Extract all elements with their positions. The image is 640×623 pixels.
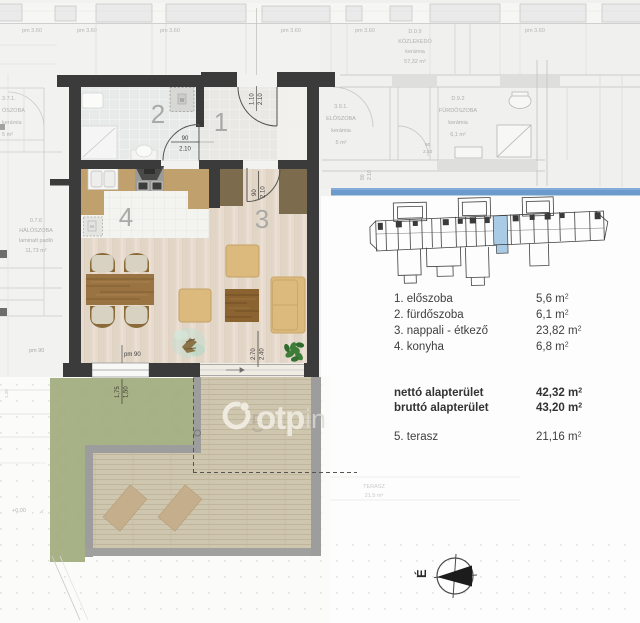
svg-text:3.9.1.: 3.9.1. <box>334 104 348 110</box>
svg-text:6,1 m²: 6,1 m² <box>450 132 466 138</box>
svg-text:laminalt padló: laminalt padló <box>19 238 53 244</box>
svg-text:4. konyha: 4. konyha <box>394 341 444 353</box>
svg-text:2.70: 2.70 <box>251 348 257 360</box>
svg-text:KÖZLEKEDŐ: KÖZLEKEDŐ <box>398 38 432 45</box>
svg-text:1: 1 <box>214 107 228 137</box>
svg-text:4: 4 <box>119 202 133 232</box>
svg-text:TERASZ: TERASZ <box>363 484 385 490</box>
svg-text:5 m²: 5 m² <box>336 140 347 146</box>
svg-text:1,75: 1,75 <box>115 386 121 398</box>
svg-text:in: in <box>305 404 326 434</box>
svg-text:M: M <box>90 224 94 229</box>
svg-text:90: 90 <box>425 142 431 148</box>
svg-text:pm 3.60: pm 3.60 <box>22 28 42 34</box>
svg-text:43,20 m2: 43,20 m2 <box>536 402 582 414</box>
svg-text:FÜRDŐSZOBA: FÜRDŐSZOBA <box>439 107 478 114</box>
svg-text:kerámia: kerámia <box>2 120 23 126</box>
svg-text:É: É <box>414 569 429 578</box>
svg-text:bruttó alapterület: bruttó alapterület <box>394 402 489 414</box>
svg-text:42,32 m2: 42,32 m2 <box>536 387 582 399</box>
svg-text:23,82 m2: 23,82 m2 <box>536 325 582 337</box>
svg-text:21,5 m²: 21,5 m² <box>365 493 384 499</box>
svg-text:1. előszoba: 1. előszoba <box>394 293 453 305</box>
svg-text:2.10: 2.10 <box>258 93 264 105</box>
svg-text:2: 2 <box>151 99 165 129</box>
svg-text:+0,00: +0,00 <box>12 508 26 514</box>
svg-text:2.10: 2.10 <box>179 147 191 153</box>
svg-text:pm 3.60: pm 3.60 <box>77 28 97 34</box>
svg-text:otp: otp <box>256 399 304 436</box>
svg-text:1,20: 1,20 <box>4 389 9 398</box>
svg-text:0.7.6: 0.7.6 <box>30 218 42 224</box>
svg-text:pm 90: pm 90 <box>29 348 44 354</box>
svg-text:1.10: 1.10 <box>250 93 256 105</box>
svg-text:90: 90 <box>182 136 189 142</box>
svg-text:D.0.9: D.0.9 <box>408 29 421 35</box>
svg-text:pm 3.60: pm 3.60 <box>160 28 180 34</box>
svg-text:W: W <box>180 98 185 104</box>
svg-text:pm 3.60: pm 3.60 <box>355 28 375 34</box>
svg-text:2.10: 2.10 <box>367 170 373 180</box>
svg-text:90: 90 <box>252 189 258 196</box>
svg-text:ÓSZOBA: ÓSZOBA <box>2 107 25 114</box>
svg-text:5 m²: 5 m² <box>2 132 13 138</box>
svg-text:6,8 m2: 6,8 m2 <box>536 341 569 353</box>
svg-text:2. fürdőszoba: 2. fürdőszoba <box>394 309 464 321</box>
svg-text:6,1 m2: 6,1 m2 <box>536 309 569 321</box>
svg-text:5,6 m2: 5,6 m2 <box>536 293 569 305</box>
svg-text:kerámia: kerámia <box>448 120 469 126</box>
svg-text:pm 3.60: pm 3.60 <box>281 28 301 34</box>
svg-text:5. terasz: 5. terasz <box>394 431 438 443</box>
svg-text:kerámia: kerámia <box>405 49 426 55</box>
svg-text:3: 3 <box>255 204 269 234</box>
svg-text:90: 90 <box>360 174 366 180</box>
svg-text:pm 90: pm 90 <box>124 352 141 358</box>
svg-text:11,73 m²: 11,73 m² <box>25 248 46 254</box>
svg-text:kerámia: kerámia <box>331 128 352 134</box>
svg-text:1,50: 1,50 <box>124 386 130 398</box>
svg-text:3.7.1.: 3.7.1. <box>2 96 16 102</box>
svg-text:D.9.2: D.9.2 <box>451 96 464 102</box>
svg-text:pm 3.60: pm 3.60 <box>525 28 545 34</box>
svg-text:HÁLÓSZOBA: HÁLÓSZOBA <box>19 227 53 234</box>
svg-text:2.40: 2.40 <box>260 348 266 360</box>
svg-text:2.10: 2.10 <box>261 186 267 198</box>
svg-text:ELŐSZOBA: ELŐSZOBA <box>326 115 356 122</box>
svg-text:57,32 m²: 57,32 m² <box>404 59 426 65</box>
svg-text:3. nappali - étkező: 3. nappali - étkező <box>394 325 488 337</box>
svg-text:nettó alapterület: nettó alapterület <box>394 387 484 399</box>
svg-text:2.10: 2.10 <box>423 149 433 155</box>
svg-text:21,16 m2: 21,16 m2 <box>536 431 582 443</box>
